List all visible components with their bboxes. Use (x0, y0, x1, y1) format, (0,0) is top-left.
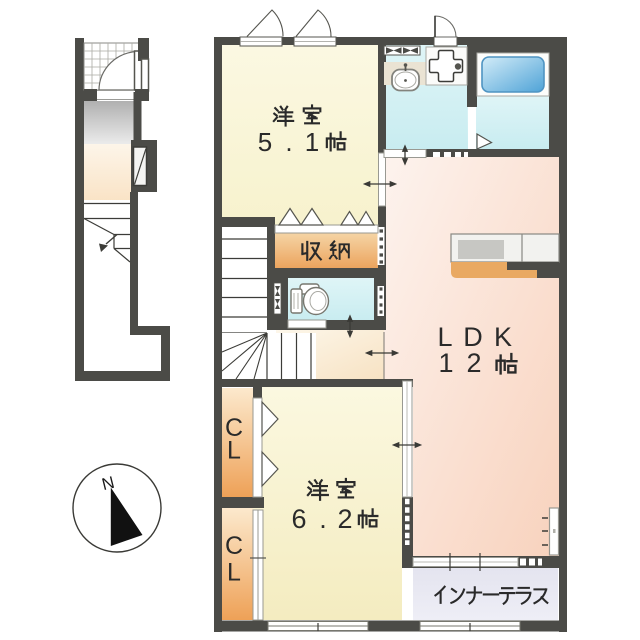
svg-text:1: 1 (438, 348, 453, 378)
svg-text:L: L (227, 437, 241, 465)
svg-text:.: . (285, 127, 292, 157)
svg-text:5: 5 (258, 127, 272, 157)
svg-text:K: K (494, 322, 512, 352)
svg-text:.: . (319, 504, 327, 534)
svg-text:6: 6 (291, 504, 306, 534)
svg-text:L: L (227, 559, 241, 587)
svg-text:2: 2 (466, 348, 481, 378)
svg-text:1: 1 (305, 127, 319, 157)
svg-text:C: C (225, 532, 243, 560)
svg-text:2: 2 (337, 504, 352, 534)
